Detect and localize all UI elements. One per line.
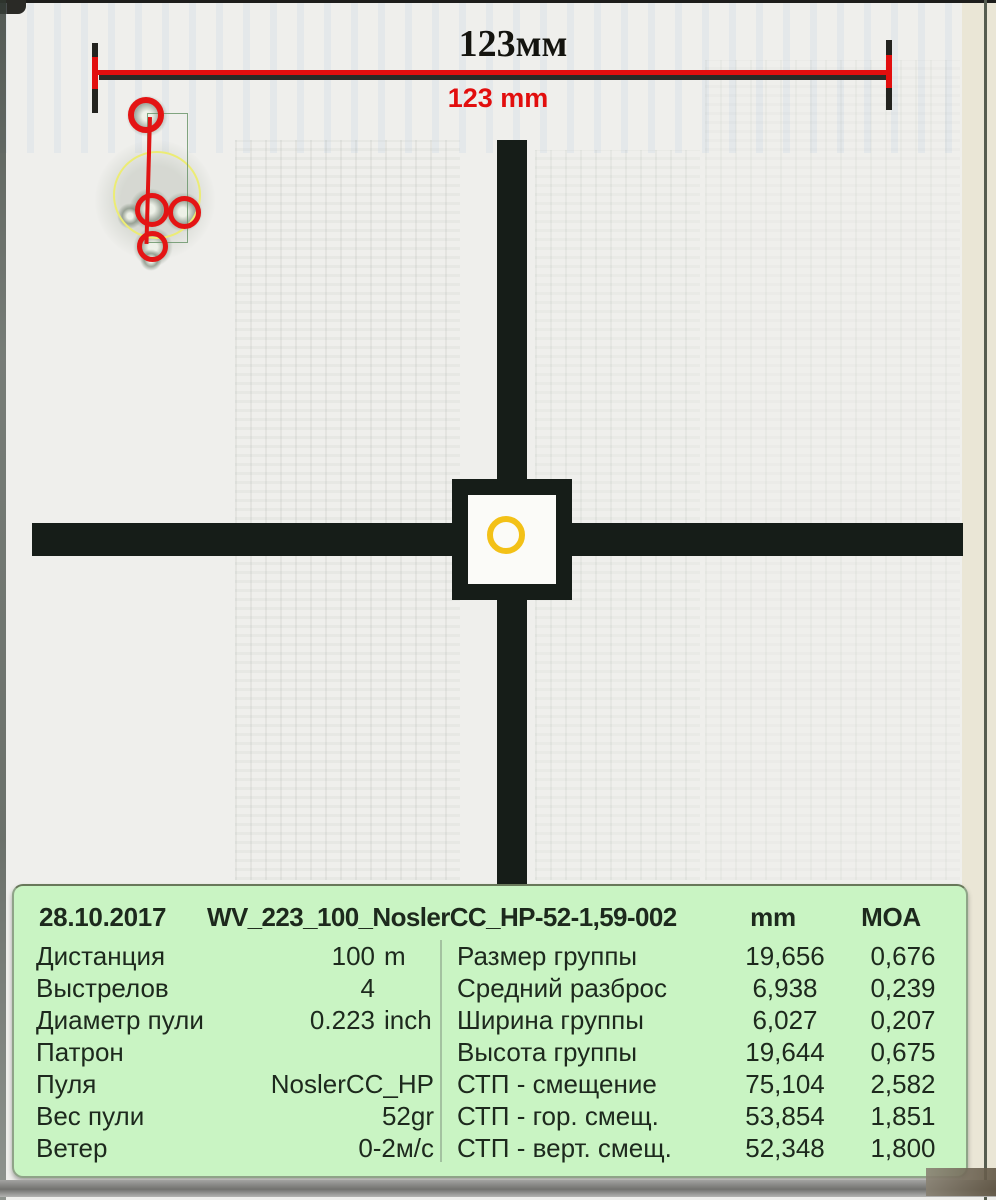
stat-label: Ширина группы [454,1005,739,1036]
stat-mm-value: 52,348 [739,1133,831,1164]
table-row: Выстрелов4 [36,972,434,1004]
stat-moa-value: 2,582 [855,1069,951,1100]
scan-corner-bottom-right [926,1168,996,1196]
aim-point-ring-icon [487,516,525,554]
table-row: Размер группы19,6560,676 [454,940,951,972]
scan-edge-left [0,0,6,1200]
stat-label: Средний разброс [454,973,739,1004]
info-value: 100 [165,941,375,972]
info-label: Диаметр пули [36,1005,204,1036]
info-unit: m [384,941,434,972]
stat-label: СТП - гор. смещ. [454,1101,739,1132]
session-title: WV_223_100_NoslerCC_HP-52-1,59-002 [207,900,677,934]
shot-marker-1 [128,97,164,133]
column-header-mm: mm [727,900,819,934]
stat-moa-value: 0,207 [855,1005,951,1036]
info-label: Пуля [36,1069,96,1100]
ruler-tick-left-red [92,57,98,89]
shot-marker-4 [137,231,168,262]
info-label: Выстрелов [36,973,169,1004]
table-row: СТП - верт. смещ.52,3481,800 [454,1132,951,1164]
column-header-moa: MOA [843,900,939,934]
shot-marker-3 [168,196,201,229]
ruler-length-label-black: 123мм [393,22,633,66]
table-row: Дистанция100m [36,940,434,972]
scan-edge-right-line [984,0,987,1200]
group-stats-column: Размер группы19,6560,676 Средний разброс… [454,940,951,1164]
table-column-divider [440,940,442,1162]
stat-mm-value: 19,656 [739,941,831,972]
table-row: ПуляNoslerCC_HP [36,1068,434,1100]
info-label: Дистанция [36,941,165,972]
ruler-line-black [99,75,888,80]
info-label: Ветер [36,1133,107,1164]
stat-mm-value: 6,027 [739,1005,831,1036]
stat-mm-value: 19,644 [739,1037,831,1068]
stat-label: Размер группы [454,941,739,972]
bleed-through-text-column [235,140,460,880]
stat-moa-value: 0,239 [855,973,951,1004]
info-value: NoslerCC_HP [96,1069,434,1100]
info-value: 0.223 [204,1005,375,1036]
shot-marker-2 [135,193,169,227]
table-row: Средний разброс6,9380,239 [454,972,951,1004]
stat-label: СТП - верт. смещ. [454,1133,739,1164]
stat-mm-value: 6,938 [739,973,831,1004]
info-value: 4 [169,973,375,1004]
bleed-through-text-column [705,60,960,880]
ruler-line-red [95,70,890,75]
table-row: Патрон [36,1036,434,1068]
info-unit [384,973,434,1004]
info-label: Патрон [36,1037,124,1068]
stat-moa-value: 0,675 [855,1037,951,1068]
ruler-length-label-red: 123 mm [378,83,618,114]
table-row: СТП - гор. смещ.53,8541,851 [454,1100,951,1132]
stat-moa-value: 1,800 [855,1133,951,1164]
load-info-column: Дистанция100m Выстрелов4 Диаметр пули0.2… [36,940,434,1164]
table-row: Ветер0-2м/с [36,1132,434,1164]
info-value: 52gr [144,1101,434,1132]
table-row: Вес пули52gr [36,1100,434,1132]
stat-mm-value: 75,104 [739,1069,831,1100]
session-date: 28.10.2017 [39,900,166,934]
table-row: Ширина группы6,0270,207 [454,1004,951,1036]
stats-table: 28.10.2017 WV_223_100_NoslerCC_HP-52-1,5… [12,884,968,1178]
stat-moa-value: 0,676 [855,941,951,972]
scan-shadow-bottom [0,1180,996,1197]
stat-label: СТП - смещение [454,1069,739,1100]
table-row: СТП - смещение75,1042,582 [454,1068,951,1100]
stat-label: Высота группы [454,1037,739,1068]
stat-moa-value: 1,851 [855,1101,951,1132]
ruler-tick-right-red [886,55,892,88]
table-row: Диаметр пули0.223inch [36,1004,434,1036]
info-label: Вес пули [36,1101,144,1132]
info-unit: inch [384,1005,434,1036]
info-value: 0-2м/с [107,1133,434,1164]
stat-mm-value: 53,854 [739,1101,831,1132]
table-row: Высота группы19,6440,675 [454,1036,951,1068]
